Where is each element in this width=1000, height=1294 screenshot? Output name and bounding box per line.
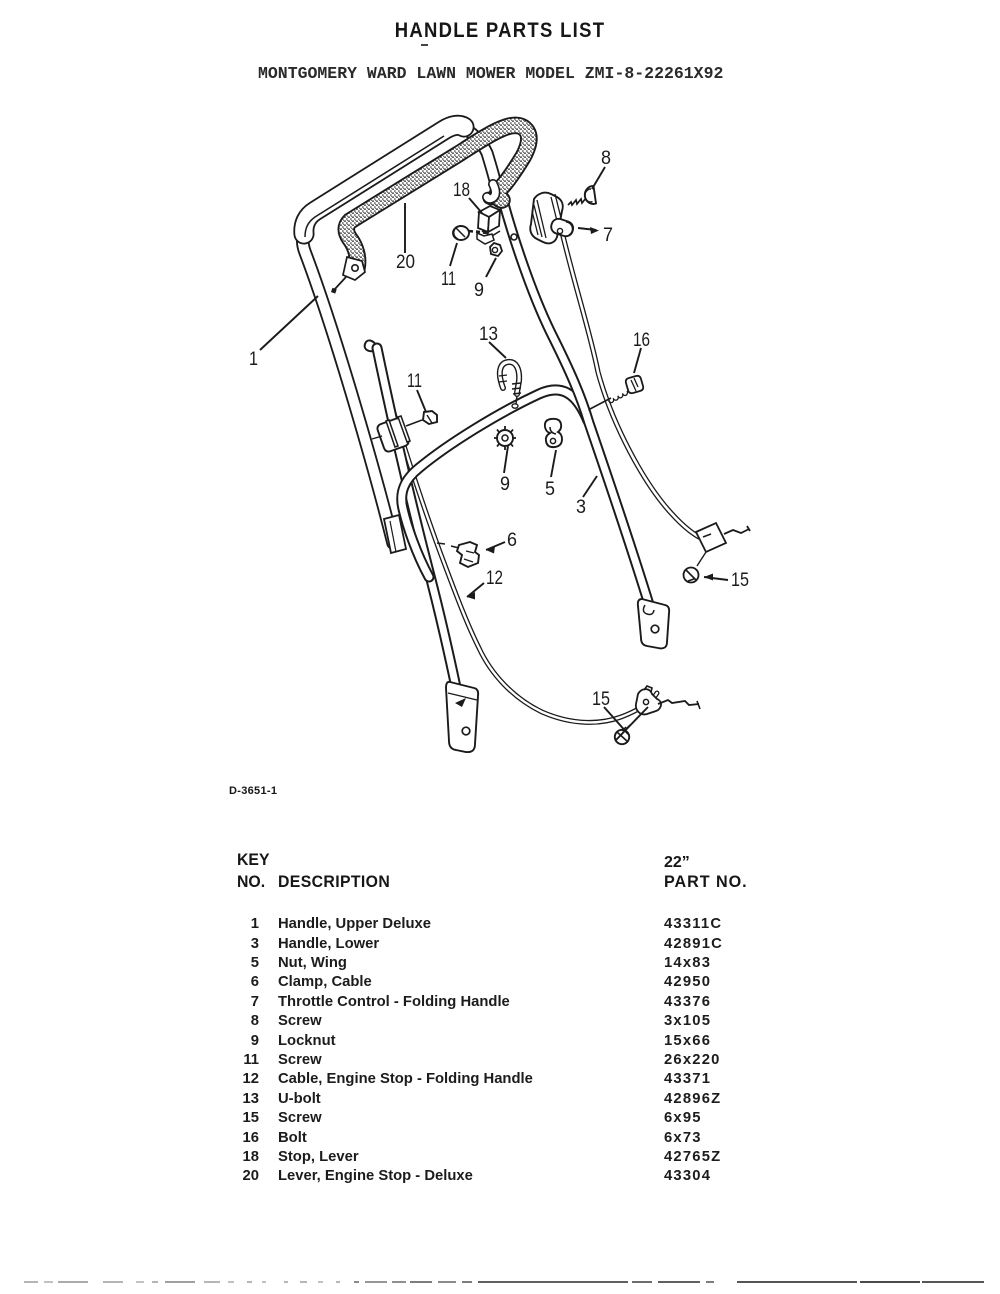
- svg-text:7: 7: [603, 225, 613, 246]
- svg-text:5: 5: [545, 479, 555, 500]
- svg-text:20: 20: [396, 252, 415, 273]
- svg-text:1: 1: [249, 349, 258, 370]
- svg-text:8: 8: [601, 148, 611, 169]
- svg-text:13: 13: [479, 324, 498, 345]
- svg-text:16: 16: [633, 330, 650, 351]
- svg-text:15: 15: [731, 570, 749, 591]
- svg-text:11: 11: [441, 269, 456, 290]
- svg-text:6: 6: [507, 530, 517, 551]
- svg-text:12: 12: [486, 568, 503, 589]
- svg-text:15: 15: [592, 689, 610, 710]
- svg-text:9: 9: [500, 474, 510, 495]
- svg-text:18: 18: [453, 180, 470, 201]
- svg-text:3: 3: [576, 497, 586, 518]
- svg-text:9: 9: [474, 280, 484, 301]
- svg-text:11: 11: [407, 371, 422, 392]
